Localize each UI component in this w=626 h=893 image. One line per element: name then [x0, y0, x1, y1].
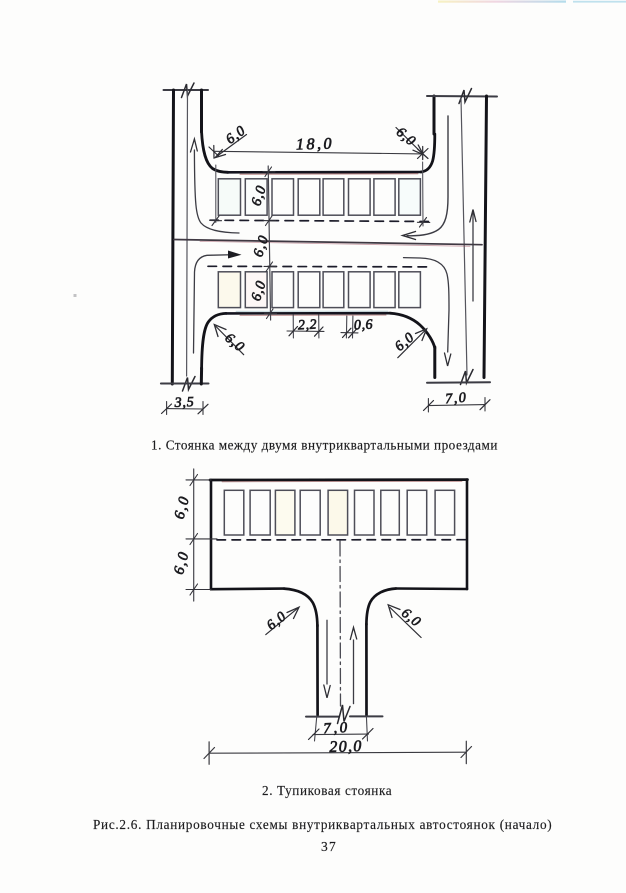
svg-text:20,0: 20,0 — [329, 738, 363, 756]
svg-text:2,2: 2,2 — [298, 317, 318, 333]
svg-text:Рис.2.6. Планировочные схемы в: Рис.2.6. Планировочные схемы внутрикварт… — [93, 817, 552, 832]
svg-text:18,0: 18,0 — [296, 135, 334, 153]
svg-text:3,5: 3,5 — [173, 395, 194, 411]
svg-text:7,0: 7,0 — [445, 390, 468, 407]
svg-text:0,6: 0,6 — [354, 318, 374, 334]
svg-text:2. Тупиковая стоянка: 2. Тупиковая стоянка — [262, 783, 392, 798]
svg-text:1. Стоянка между двумя внутрик: 1. Стоянка между двумя внутриквартальным… — [151, 438, 498, 453]
svg-text:7,0: 7,0 — [323, 720, 350, 737]
svg-text:37: 37 — [321, 839, 337, 854]
